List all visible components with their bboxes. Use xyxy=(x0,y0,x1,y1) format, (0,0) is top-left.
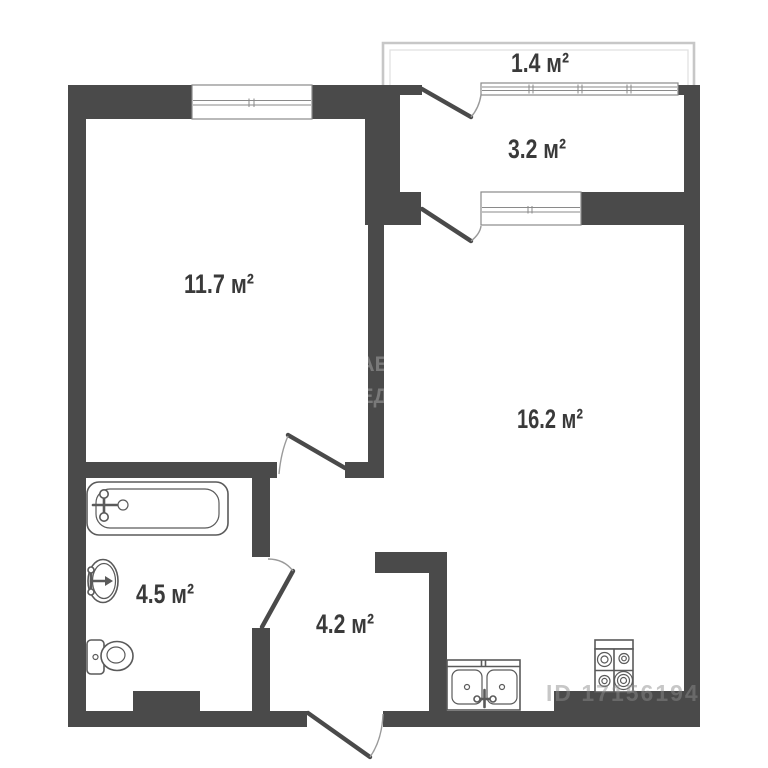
wall-loggia-top-stub xyxy=(400,85,422,95)
duct-block xyxy=(133,691,200,711)
room-label-loggia: 3.2 м² xyxy=(508,134,566,164)
floor-plan-canvas: 1.4 м² 3.2 м² 11.7 м² 16.2 м² 4.5 м² 4.2… xyxy=(0,0,768,768)
wall-outer-right xyxy=(684,85,700,727)
kitchen-sink-icon xyxy=(447,660,520,710)
room-hallway xyxy=(270,478,430,711)
listing-id-watermark: ID 17156194 xyxy=(546,680,700,706)
wall-hallway-kitchen-stub xyxy=(375,552,447,573)
wall-hallway-kitchen xyxy=(429,573,447,711)
wall-loggia-bottom-left xyxy=(365,192,421,225)
wall-bathroom-right-bottom xyxy=(252,628,270,711)
wall-watermark-line1: АЕ xyxy=(359,353,388,376)
wall-bedroom-loggia xyxy=(365,119,400,192)
wall-outer-bottom-right xyxy=(383,711,700,727)
door-entrance xyxy=(308,713,383,757)
bathtub-icon xyxy=(87,482,228,535)
wall-outer-bottom-left xyxy=(68,711,307,727)
washbasin-icon xyxy=(88,560,118,603)
wall-loggia-bottom-right xyxy=(581,192,684,225)
wall-bedroom-living xyxy=(368,225,384,462)
room-label-bedroom: 11.7 м² xyxy=(184,269,254,299)
wall-watermark-line2: ЕД xyxy=(360,385,389,408)
room-label-bathroom: 4.5 м² xyxy=(136,579,194,609)
room-label-balcony: 1.4 м² xyxy=(511,48,569,78)
wall-outer-left xyxy=(68,85,86,727)
wall-bedroom-door-stub xyxy=(345,462,384,478)
room-label-hallway: 4.2 м² xyxy=(316,609,374,639)
wall-bathroom-right-top xyxy=(252,478,270,557)
window-loggia-living xyxy=(481,192,581,225)
window-bedroom xyxy=(192,85,312,119)
window-balcony-glazing xyxy=(481,83,678,95)
room-label-living: 16.2 м² xyxy=(517,404,583,434)
wall-bedroom-bottom xyxy=(68,462,277,478)
floor-plan: 1.4 м² 3.2 м² 11.7 м² 16.2 м² 4.5 м² 4.2… xyxy=(0,0,768,768)
